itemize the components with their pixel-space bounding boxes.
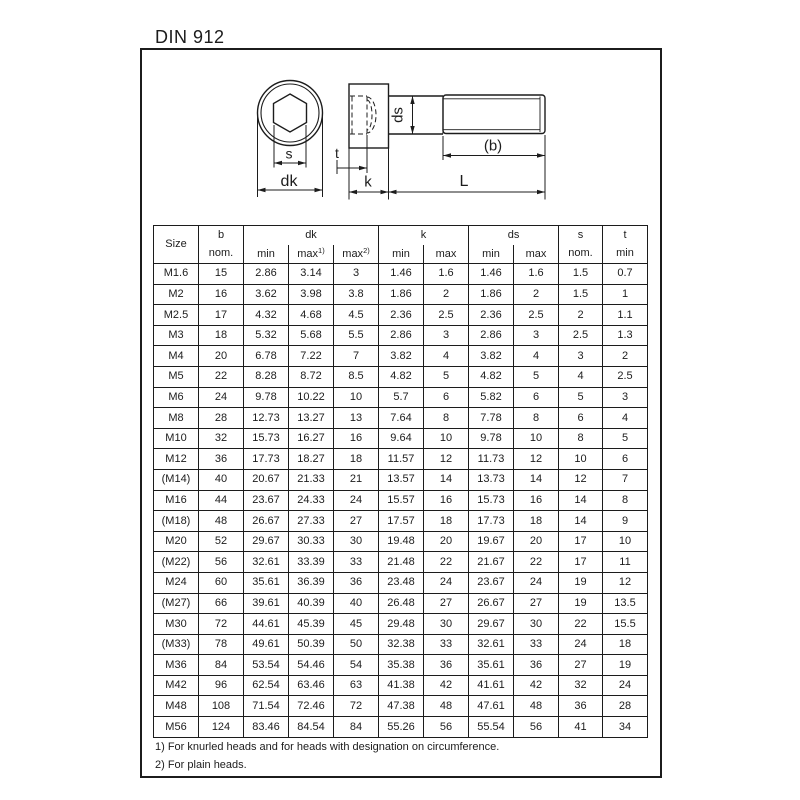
value-cell: 6 — [424, 387, 469, 408]
value-cell: 2.5 — [514, 305, 559, 326]
datasheet-page: { "page": { "title": "DIN 912" }, "color… — [0, 0, 800, 800]
value-cell: 45.39 — [289, 614, 334, 635]
value-cell: 5.7 — [379, 387, 424, 408]
value-cell: 6 — [603, 449, 648, 470]
value-cell: 20.67 — [244, 469, 289, 490]
value-cell: 56 — [514, 717, 559, 738]
value-cell: 56 — [424, 717, 469, 738]
value-cell: 7 — [334, 346, 379, 367]
value-cell: 124 — [199, 717, 244, 738]
value-cell: 83.46 — [244, 717, 289, 738]
subcol-k-max: max — [424, 245, 469, 264]
subcol-dk-max1: max1) — [289, 245, 334, 264]
value-cell: 1.86 — [469, 284, 514, 305]
value-cell: 4.32 — [244, 305, 289, 326]
value-cell: 28 — [199, 408, 244, 429]
value-cell: 9.78 — [244, 387, 289, 408]
value-cell: 27 — [424, 593, 469, 614]
value-cell: 15.5 — [603, 614, 648, 635]
value-cell: 30.33 — [289, 531, 334, 552]
value-cell: 56 — [199, 552, 244, 573]
value-cell: 6.78 — [244, 346, 289, 367]
arrowhead — [381, 190, 389, 194]
table-row: M103215.7316.27169.64109.781085 — [154, 428, 648, 449]
col-header-b: b nom. — [199, 226, 244, 264]
size-cell: M20 — [154, 531, 199, 552]
size-cell: (M22) — [154, 552, 199, 573]
value-cell: 30 — [514, 614, 559, 635]
size-cell: M3 — [154, 325, 199, 346]
size-cell: (M18) — [154, 511, 199, 532]
col-group-ds: ds — [469, 226, 559, 246]
size-cell: M4 — [154, 346, 199, 367]
value-cell: 36 — [334, 572, 379, 593]
value-cell: 3.62 — [244, 284, 289, 305]
value-cell: 54 — [334, 655, 379, 676]
col-header-size: Size — [154, 226, 199, 264]
value-cell: 12 — [424, 449, 469, 470]
subcol-ds-min: min — [469, 245, 514, 264]
value-cell: 12 — [603, 572, 648, 593]
value-cell: 4 — [603, 408, 648, 429]
dim-label-k: k — [364, 174, 372, 191]
value-cell: 10 — [514, 428, 559, 449]
arrowhead — [349, 190, 357, 194]
value-cell: 2.86 — [379, 325, 424, 346]
value-cell: 3 — [424, 325, 469, 346]
table-row: M307244.6145.394529.483029.67302215.5 — [154, 614, 648, 635]
value-cell: 55.54 — [469, 717, 514, 738]
size-cell: M24 — [154, 572, 199, 593]
value-cell: 2.86 — [244, 264, 289, 285]
value-cell: 60 — [199, 572, 244, 593]
value-cell: 17.73 — [244, 449, 289, 470]
value-cell: 63.46 — [289, 675, 334, 696]
value-cell: 36 — [199, 449, 244, 470]
threaded-section — [443, 95, 545, 134]
value-cell: 1.46 — [379, 264, 424, 285]
arrowhead — [315, 188, 323, 192]
value-cell: 18 — [603, 634, 648, 655]
value-cell: 11.57 — [379, 449, 424, 470]
value-cell: 14 — [559, 511, 603, 532]
arrowhead — [258, 188, 266, 192]
value-cell: 5 — [603, 428, 648, 449]
value-cell: 3.82 — [379, 346, 424, 367]
value-cell: 0.7 — [603, 264, 648, 285]
value-cell: 71.54 — [244, 696, 289, 717]
value-cell: 13.5 — [603, 593, 648, 614]
value-cell: 36 — [559, 696, 603, 717]
value-cell: 1.3 — [603, 325, 648, 346]
value-cell: 17.73 — [469, 511, 514, 532]
value-cell: 48 — [424, 696, 469, 717]
arrowhead — [298, 161, 306, 165]
value-cell: 32 — [559, 675, 603, 696]
value-cell: 41.61 — [469, 675, 514, 696]
footnote-2: 2) For plain heads. — [155, 759, 247, 771]
value-cell: 16.27 — [289, 428, 334, 449]
col-group-k: k — [379, 226, 469, 246]
technical-drawing: s dk — [142, 50, 660, 228]
table-row: M82812.7313.27137.6487.78864 — [154, 408, 648, 429]
value-cell: 33 — [514, 634, 559, 655]
value-cell: 52 — [199, 531, 244, 552]
col-header-t: t min — [603, 226, 648, 264]
table-row: (M18)4826.6727.332717.571817.7318149 — [154, 511, 648, 532]
value-cell: 24 — [603, 675, 648, 696]
value-cell: 44.61 — [244, 614, 289, 635]
value-cell: 45 — [334, 614, 379, 635]
arrowhead — [359, 166, 367, 170]
value-cell: 34 — [603, 717, 648, 738]
value-cell: 1.1 — [603, 305, 648, 326]
value-cell: 40 — [334, 593, 379, 614]
value-cell: 39.61 — [244, 593, 289, 614]
table-row: M5612483.4684.548455.265655.54564134 — [154, 717, 648, 738]
hidden-socket-lines — [350, 96, 376, 134]
value-cell: 7.22 — [289, 346, 334, 367]
value-cell: 13.73 — [469, 469, 514, 490]
value-cell: 29.48 — [379, 614, 424, 635]
size-cell: (M33) — [154, 634, 199, 655]
value-cell: 12 — [559, 469, 603, 490]
value-cell: 21.67 — [469, 552, 514, 573]
value-cell: 23.67 — [469, 572, 514, 593]
footnote-marker-1: 1) — [318, 246, 325, 255]
table-row: M246035.6136.393623.482423.67241912 — [154, 572, 648, 593]
value-cell: 3 — [514, 325, 559, 346]
value-cell: 4.82 — [469, 366, 514, 387]
value-cell: 7.64 — [379, 408, 424, 429]
value-cell: 5.68 — [289, 325, 334, 346]
value-cell: 24 — [199, 387, 244, 408]
value-cell: 20 — [514, 531, 559, 552]
value-cell: 21 — [334, 469, 379, 490]
value-cell: 8.28 — [244, 366, 289, 387]
value-cell: 53.54 — [244, 655, 289, 676]
value-cell: 33 — [424, 634, 469, 655]
value-cell: 8.72 — [289, 366, 334, 387]
arrowhead — [389, 190, 397, 194]
value-cell: 27 — [514, 593, 559, 614]
value-cell: 22 — [199, 366, 244, 387]
value-cell: 15.73 — [469, 490, 514, 511]
value-cell: 24 — [334, 490, 379, 511]
value-cell: 8 — [424, 408, 469, 429]
table-row: M4206.787.2273.8243.82432 — [154, 346, 648, 367]
value-cell: 29.67 — [244, 531, 289, 552]
value-cell: 62.54 — [244, 675, 289, 696]
value-cell: 8 — [603, 490, 648, 511]
value-cell: 2 — [603, 346, 648, 367]
table-row: M429662.5463.466341.384241.61423224 — [154, 675, 648, 696]
value-cell: 48 — [199, 511, 244, 532]
value-cell: 13.27 — [289, 408, 334, 429]
value-cell: 2.5 — [559, 325, 603, 346]
arrowhead — [410, 96, 414, 104]
dim-label-t: t — [335, 145, 339, 161]
value-cell: 24 — [559, 634, 603, 655]
value-cell: 5 — [424, 366, 469, 387]
value-cell: 5 — [559, 387, 603, 408]
value-cell: 5.82 — [469, 387, 514, 408]
value-cell: 16 — [514, 490, 559, 511]
value-cell: 18.27 — [289, 449, 334, 470]
value-cell: 1.5 — [559, 284, 603, 305]
value-cell: 16 — [424, 490, 469, 511]
value-cell: 55.26 — [379, 717, 424, 738]
value-cell: 19.67 — [469, 531, 514, 552]
value-cell: 18 — [334, 449, 379, 470]
value-cell: 16 — [334, 428, 379, 449]
value-cell: 35.61 — [244, 572, 289, 593]
value-cell: 22 — [424, 552, 469, 573]
value-cell: 84 — [334, 717, 379, 738]
value-cell: 47.38 — [379, 696, 424, 717]
value-cell: 17 — [559, 531, 603, 552]
size-cell: M6 — [154, 387, 199, 408]
value-cell: 2.86 — [469, 325, 514, 346]
value-cell: 40 — [199, 469, 244, 490]
value-cell: 21.33 — [289, 469, 334, 490]
value-cell: 2.5 — [424, 305, 469, 326]
value-cell: 15.57 — [379, 490, 424, 511]
value-cell: 20 — [424, 531, 469, 552]
value-cell: 1 — [603, 284, 648, 305]
table-row: M368453.5454.465435.383635.61362719 — [154, 655, 648, 676]
value-cell: 36.39 — [289, 572, 334, 593]
value-cell: 32.61 — [469, 634, 514, 655]
value-cell: 3 — [603, 387, 648, 408]
value-cell: 9 — [603, 511, 648, 532]
table-row: M3185.325.685.52.8632.8632.51.3 — [154, 325, 648, 346]
size-cell: M16 — [154, 490, 199, 511]
table-row: M123617.7318.271811.571211.7312106 — [154, 449, 648, 470]
value-cell: 24 — [514, 572, 559, 593]
value-cell: 2 — [424, 284, 469, 305]
value-cell: 16 — [199, 284, 244, 305]
value-cell: 30 — [334, 531, 379, 552]
value-cell: 19 — [559, 572, 603, 593]
value-cell: 50 — [334, 634, 379, 655]
size-cell: M10 — [154, 428, 199, 449]
value-cell: 26.67 — [469, 593, 514, 614]
value-cell: 19.48 — [379, 531, 424, 552]
value-cell: 35.38 — [379, 655, 424, 676]
value-cell: 4.5 — [334, 305, 379, 326]
value-cell: 72 — [334, 696, 379, 717]
front-view-dimensions: s dk — [258, 146, 323, 193]
value-cell: 7.78 — [469, 408, 514, 429]
value-cell: 3.14 — [289, 264, 334, 285]
table-row: M6249.7810.22105.765.82653 — [154, 387, 648, 408]
value-cell: 35.61 — [469, 655, 514, 676]
value-cell: 18 — [514, 511, 559, 532]
table-row: (M14)4020.6721.332113.571413.7314127 — [154, 469, 648, 490]
table-row: (M33)7849.6150.395032.383332.61332418 — [154, 634, 648, 655]
value-cell: 10.22 — [289, 387, 334, 408]
value-cell: 4 — [559, 366, 603, 387]
value-cell: 2 — [559, 305, 603, 326]
value-cell: 84.54 — [289, 717, 334, 738]
value-cell: 15.73 — [244, 428, 289, 449]
value-cell: 3 — [559, 346, 603, 367]
screw-side-view — [349, 84, 545, 148]
size-cell: M48 — [154, 696, 199, 717]
value-cell: 21.48 — [379, 552, 424, 573]
footnote-marker-2: 2) — [363, 246, 370, 255]
value-cell: 3.98 — [289, 284, 334, 305]
value-cell: 1.46 — [469, 264, 514, 285]
value-cell: 33.39 — [289, 552, 334, 573]
arrowhead — [410, 126, 414, 134]
value-cell: 30 — [424, 614, 469, 635]
value-cell: 10 — [603, 531, 648, 552]
value-cell: 23.67 — [244, 490, 289, 511]
value-cell: 14 — [424, 469, 469, 490]
value-cell: 66 — [199, 593, 244, 614]
dimensions-table: Size b nom. dk k ds s nom. t min min — [153, 225, 648, 738]
value-cell: 17 — [199, 305, 244, 326]
value-cell: 2.36 — [379, 305, 424, 326]
value-cell: 50.39 — [289, 634, 334, 655]
value-cell: 54.46 — [289, 655, 334, 676]
dim-label-L: L — [460, 173, 469, 190]
value-cell: 1.86 — [379, 284, 424, 305]
value-cell: 41 — [559, 717, 603, 738]
hex-socket-outline — [274, 94, 307, 132]
value-cell: 28 — [603, 696, 648, 717]
col-header-s: s nom. — [559, 226, 603, 264]
value-cell: 49.61 — [244, 634, 289, 655]
value-cell: 13.57 — [379, 469, 424, 490]
value-cell: 8 — [559, 428, 603, 449]
value-cell: 4 — [424, 346, 469, 367]
value-cell: 13 — [334, 408, 379, 429]
value-cell: 78 — [199, 634, 244, 655]
subcol-k-min: min — [379, 245, 424, 264]
value-cell: 72.46 — [289, 696, 334, 717]
value-cell: 22 — [514, 552, 559, 573]
value-cell: 26.48 — [379, 593, 424, 614]
side-view-dimensions: t ds (b) k L — [335, 96, 545, 200]
value-cell: 11.73 — [469, 449, 514, 470]
subcol-dk-max2: max2) — [334, 245, 379, 264]
value-cell: 47.61 — [469, 696, 514, 717]
screw-head — [349, 84, 389, 148]
value-cell: 3 — [334, 264, 379, 285]
value-cell: 12.73 — [244, 408, 289, 429]
value-cell: 32 — [199, 428, 244, 449]
value-cell: 23.48 — [379, 572, 424, 593]
value-cell: 1.6 — [424, 264, 469, 285]
value-cell: 41.38 — [379, 675, 424, 696]
value-cell: 10 — [559, 449, 603, 470]
size-cell: M2.5 — [154, 305, 199, 326]
value-cell: 19 — [559, 593, 603, 614]
value-cell: 10 — [424, 428, 469, 449]
value-cell: 2.5 — [603, 366, 648, 387]
value-cell: 42 — [514, 675, 559, 696]
size-cell: M1.6 — [154, 264, 199, 285]
arrowhead — [537, 153, 545, 157]
arrowhead — [443, 153, 451, 157]
value-cell: 22 — [559, 614, 603, 635]
value-cell: 14 — [559, 490, 603, 511]
size-cell: M8 — [154, 408, 199, 429]
value-cell: 4.82 — [379, 366, 424, 387]
value-cell: 48 — [514, 696, 559, 717]
value-cell: 3.8 — [334, 284, 379, 305]
value-cell: 7 — [603, 469, 648, 490]
value-cell: 27 — [334, 511, 379, 532]
head-outer-circle — [258, 81, 323, 146]
value-cell: 42 — [424, 675, 469, 696]
value-cell: 5.5 — [334, 325, 379, 346]
col-group-dk: dk — [244, 226, 379, 246]
value-cell: 5 — [514, 366, 559, 387]
value-cell: 27 — [559, 655, 603, 676]
table-header: Size b nom. dk k ds s nom. t min min — [154, 226, 648, 264]
value-cell: 27.33 — [289, 511, 334, 532]
value-cell: 6 — [514, 387, 559, 408]
value-cell: 24.33 — [289, 490, 334, 511]
size-cell: M36 — [154, 655, 199, 676]
value-cell: 84 — [199, 655, 244, 676]
value-cell: 19 — [603, 655, 648, 676]
value-cell: 32.61 — [244, 552, 289, 573]
value-cell: 6 — [559, 408, 603, 429]
value-cell: 4.68 — [289, 305, 334, 326]
footnote-1: 1) For knurled heads and for heads with … — [155, 741, 499, 753]
value-cell: 8 — [514, 408, 559, 429]
size-cell: M56 — [154, 717, 199, 738]
table-row: (M27)6639.6140.394026.482726.67271913.5 — [154, 593, 648, 614]
value-cell: 17 — [559, 552, 603, 573]
value-cell: 4 — [514, 346, 559, 367]
value-cell: 29.67 — [469, 614, 514, 635]
dim-label-s: s — [286, 146, 293, 162]
value-cell: 1.6 — [514, 264, 559, 285]
table-body: M1.6152.863.1431.461.61.461.61.50.7M2163… — [154, 264, 648, 738]
value-cell: 18 — [199, 325, 244, 346]
table-row: (M22)5632.6133.393321.482221.67221711 — [154, 552, 648, 573]
value-cell: 32.38 — [379, 634, 424, 655]
value-cell: 63 — [334, 675, 379, 696]
size-cell: M30 — [154, 614, 199, 635]
size-cell: M12 — [154, 449, 199, 470]
size-cell: M2 — [154, 284, 199, 305]
table-row: M1.6152.863.1431.461.61.461.61.50.7 — [154, 264, 648, 285]
value-cell: 40.39 — [289, 593, 334, 614]
value-cell: 10 — [334, 387, 379, 408]
table-row: M4810871.5472.467247.384847.61483628 — [154, 696, 648, 717]
dim-label-dk: dk — [281, 173, 299, 190]
value-cell: 18 — [424, 511, 469, 532]
value-cell: 17.57 — [379, 511, 424, 532]
value-cell: 5.32 — [244, 325, 289, 346]
value-cell: 36 — [514, 655, 559, 676]
page-title: DIN 912 — [155, 27, 225, 48]
value-cell: 44 — [199, 490, 244, 511]
table-row: M205229.6730.333019.482019.67201710 — [154, 531, 648, 552]
value-cell: 72 — [199, 614, 244, 635]
arrowhead — [274, 161, 282, 165]
head-inner-circle — [261, 84, 319, 142]
value-cell: 24 — [424, 572, 469, 593]
arrowhead — [537, 190, 545, 194]
